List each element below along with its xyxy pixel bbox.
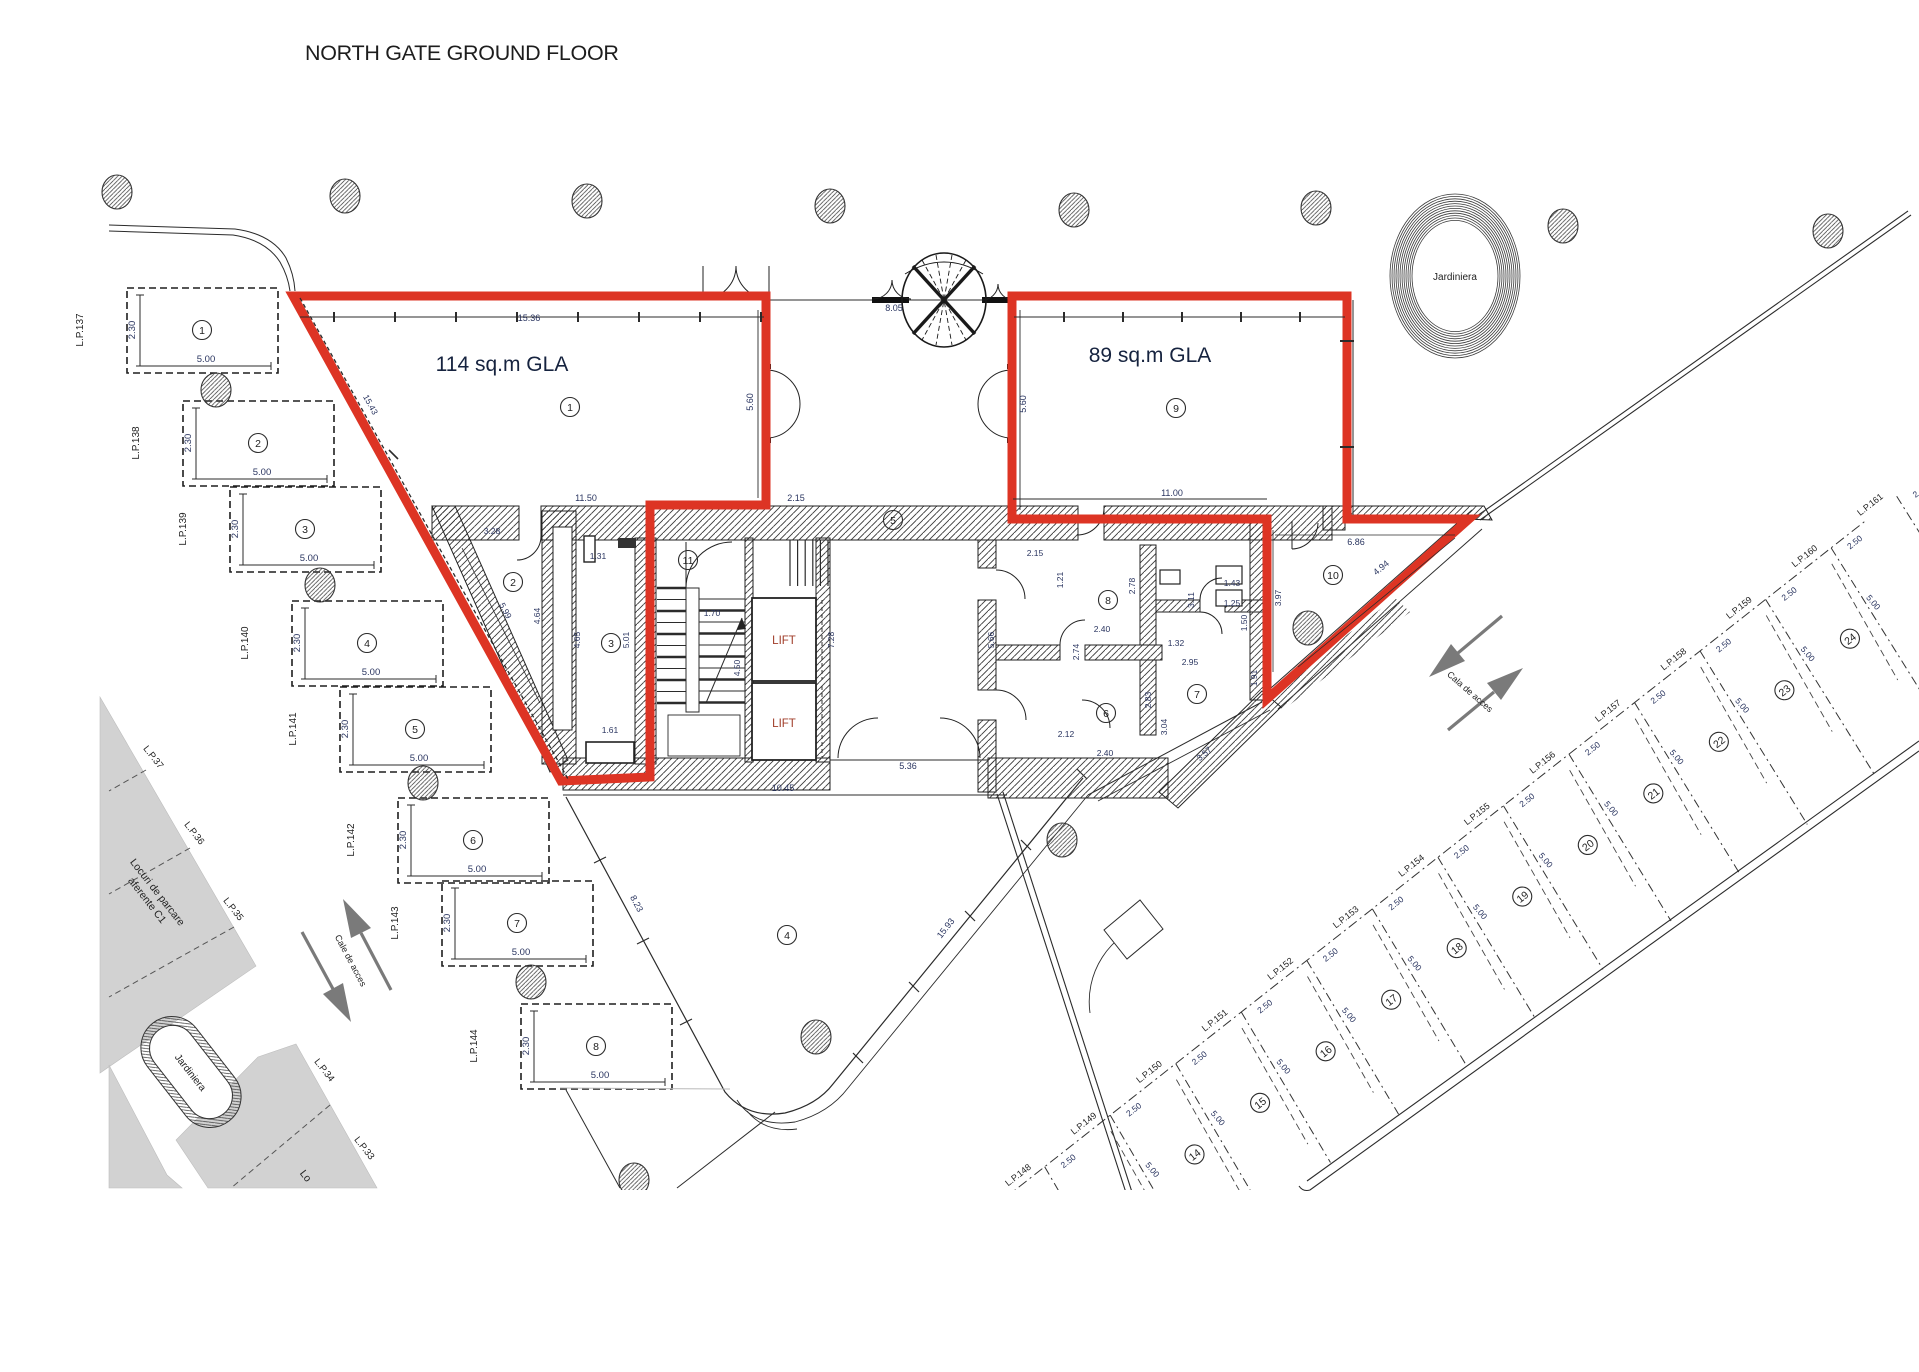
- svg-text:L.P.143: L.P.143: [390, 906, 401, 940]
- svg-text:LIFT: LIFT: [772, 718, 796, 730]
- svg-text:2.40: 2.40: [1094, 624, 1111, 634]
- svg-text:2.30: 2.30: [292, 634, 303, 653]
- svg-text:3: 3: [302, 524, 308, 536]
- svg-text:5.00: 5.00: [591, 1070, 610, 1081]
- svg-text:7.28: 7.28: [826, 631, 836, 648]
- svg-text:1: 1: [567, 402, 573, 414]
- svg-text:8.05: 8.05: [885, 303, 903, 313]
- svg-text:L.P.138: L.P.138: [131, 426, 142, 460]
- svg-text:1.91: 1.91: [1249, 669, 1259, 686]
- svg-text:L.P.140: L.P.140: [240, 626, 251, 660]
- svg-text:3.04: 3.04: [1159, 718, 1169, 735]
- svg-text:10: 10: [1327, 570, 1339, 582]
- svg-text:11.00: 11.00: [1161, 488, 1183, 498]
- svg-text:5.00: 5.00: [253, 467, 272, 478]
- svg-text:Jardiniera: Jardiniera: [1433, 272, 1477, 283]
- svg-text:1.32: 1.32: [1168, 638, 1185, 648]
- svg-text:2.30: 2.30: [230, 520, 241, 539]
- svg-text:5: 5: [412, 724, 418, 736]
- svg-text:5.60: 5.60: [745, 393, 755, 411]
- svg-text:LIFT: LIFT: [772, 635, 796, 647]
- svg-text:5.00: 5.00: [468, 864, 487, 875]
- svg-text:2.30: 2.30: [340, 720, 351, 739]
- svg-text:2: 2: [255, 438, 261, 450]
- svg-text:1.21: 1.21: [1055, 571, 1065, 588]
- svg-text:L.P.142: L.P.142: [346, 823, 357, 857]
- svg-text:5.00: 5.00: [300, 553, 319, 564]
- svg-text:5.00: 5.00: [410, 753, 429, 764]
- svg-text:3.97: 3.97: [1273, 589, 1283, 606]
- svg-text:6: 6: [1103, 708, 1109, 720]
- svg-text:15.36: 15.36: [518, 313, 541, 323]
- svg-text:5.00: 5.00: [512, 947, 531, 958]
- svg-text:NORTH GATE GROUND FLOOR: NORTH GATE GROUND FLOOR: [305, 41, 619, 65]
- svg-text:5.36: 5.36: [899, 761, 917, 771]
- svg-text:2.30: 2.30: [398, 831, 409, 850]
- svg-text:2.30: 2.30: [127, 321, 138, 340]
- svg-text:2.83: 2.83: [1143, 691, 1153, 708]
- svg-text:4.64: 4.64: [532, 607, 542, 624]
- svg-text:5.00: 5.00: [362, 667, 381, 678]
- svg-text:L.P.137: L.P.137: [75, 313, 86, 347]
- svg-text:89 sq.m GLA: 89 sq.m GLA: [1089, 344, 1212, 367]
- svg-text:3: 3: [608, 638, 614, 650]
- svg-text:8: 8: [1105, 595, 1111, 607]
- svg-text:1.61: 1.61: [602, 725, 619, 735]
- svg-text:8: 8: [593, 1041, 599, 1053]
- svg-text:2.15: 2.15: [787, 493, 805, 503]
- svg-text:4: 4: [364, 638, 370, 650]
- svg-text:2.30: 2.30: [183, 434, 194, 453]
- svg-text:4.50: 4.50: [732, 659, 742, 676]
- svg-text:3.28: 3.28: [484, 526, 501, 536]
- svg-text:4: 4: [784, 930, 790, 942]
- svg-text:7: 7: [514, 918, 520, 930]
- svg-text:5: 5: [890, 515, 896, 527]
- svg-text:1: 1: [199, 325, 205, 337]
- svg-text:L.P.141: L.P.141: [288, 712, 299, 746]
- svg-text:1.50: 1.50: [1239, 614, 1249, 631]
- svg-text:114 sq.m GLA: 114 sq.m GLA: [436, 353, 569, 376]
- svg-text:1.43: 1.43: [1224, 578, 1241, 588]
- svg-text:2.95: 2.95: [1182, 657, 1199, 667]
- svg-text:2.12: 2.12: [1058, 729, 1075, 739]
- svg-text:3.11: 3.11: [1186, 592, 1196, 608]
- svg-text:11.50: 11.50: [575, 493, 597, 503]
- svg-text:4.65: 4.65: [572, 631, 582, 648]
- svg-text:1.70: 1.70: [704, 608, 721, 618]
- svg-text:5.01: 5.01: [621, 631, 631, 648]
- svg-text:1.31: 1.31: [590, 551, 607, 561]
- svg-text:6.86: 6.86: [1347, 537, 1365, 547]
- svg-text:9: 9: [1173, 403, 1179, 415]
- svg-text:10.45: 10.45: [772, 783, 795, 793]
- svg-text:2.78: 2.78: [1127, 577, 1137, 594]
- svg-text:2.74: 2.74: [1071, 643, 1081, 660]
- svg-text:2.30: 2.30: [442, 914, 453, 933]
- svg-text:1.25: 1.25: [1224, 598, 1241, 608]
- svg-text:2: 2: [510, 577, 516, 589]
- svg-text:2.40: 2.40: [1097, 748, 1114, 758]
- svg-text:5.60: 5.60: [1018, 395, 1028, 413]
- svg-text:2.15: 2.15: [1027, 548, 1044, 558]
- svg-text:6: 6: [470, 835, 476, 847]
- svg-text:7: 7: [1194, 689, 1200, 701]
- svg-text:11: 11: [683, 555, 694, 567]
- svg-text:L.P.144: L.P.144: [469, 1029, 480, 1063]
- svg-text:5.00: 5.00: [197, 354, 216, 365]
- svg-text:5.66: 5.66: [986, 631, 996, 648]
- svg-text:L.P.139: L.P.139: [178, 512, 189, 546]
- svg-text:2.30: 2.30: [521, 1037, 532, 1056]
